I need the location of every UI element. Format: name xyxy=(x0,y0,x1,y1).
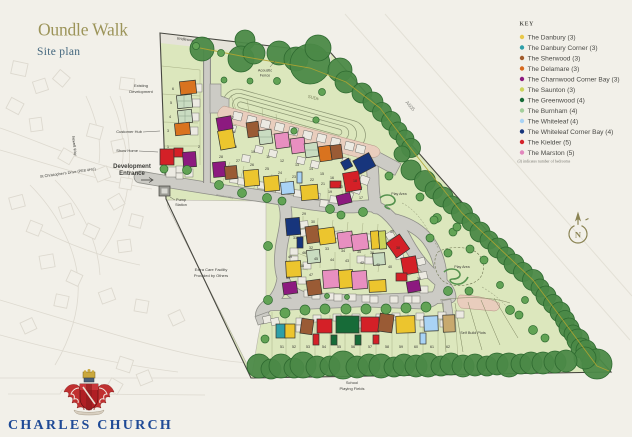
svg-text:KEY: KEY xyxy=(520,22,535,28)
svg-text:22: 22 xyxy=(310,178,314,182)
svg-text:9: 9 xyxy=(235,145,237,149)
svg-text:41: 41 xyxy=(376,263,380,267)
svg-text:28: 28 xyxy=(219,155,223,159)
svg-text:57: 57 xyxy=(368,345,372,349)
svg-text:15: 15 xyxy=(320,172,324,176)
svg-text:Show Home: Show Home xyxy=(116,148,139,153)
svg-text:12: 12 xyxy=(280,159,284,163)
svg-text:Play Area: Play Area xyxy=(391,192,406,196)
svg-text:Existing: Existing xyxy=(134,83,148,88)
svg-text:48: 48 xyxy=(300,264,304,268)
svg-text:33: 33 xyxy=(325,247,329,251)
svg-text:Entrance: Entrance xyxy=(119,171,145,177)
svg-text:49: 49 xyxy=(288,255,292,259)
svg-text:51: 51 xyxy=(280,345,284,349)
svg-text:4: 4 xyxy=(169,115,171,119)
svg-text:30: 30 xyxy=(311,220,315,224)
svg-text:46: 46 xyxy=(302,251,306,255)
svg-text:23: 23 xyxy=(292,175,296,179)
svg-text:54: 54 xyxy=(322,345,326,349)
svg-text:13: 13 xyxy=(295,163,299,167)
svg-text:56: 56 xyxy=(351,345,355,349)
svg-text:The Sherwood (3): The Sherwood (3) xyxy=(528,55,581,62)
svg-text:34: 34 xyxy=(341,249,345,253)
svg-text:Site plan: Site plan xyxy=(37,46,80,58)
svg-text:Fence: Fence xyxy=(260,74,271,78)
svg-text:The Burnham (4): The Burnham (4) xyxy=(528,108,578,115)
svg-text:CHARLES CHURCH: CHARLES CHURCH xyxy=(8,418,175,433)
svg-text:8: 8 xyxy=(233,130,235,134)
svg-text:7: 7 xyxy=(232,116,234,120)
svg-text:The Marston (5): The Marston (5) xyxy=(528,150,575,157)
svg-text:29: 29 xyxy=(302,212,306,216)
svg-text:42: 42 xyxy=(360,261,364,265)
svg-text:The Charnwood Corner Bay (3): The Charnwood Corner Bay (3) xyxy=(528,76,620,83)
svg-text:The Whiteleaf (4): The Whiteleaf (4) xyxy=(528,118,579,125)
svg-text:21: 21 xyxy=(321,182,325,186)
svg-text:The Whiteleaf Corner Bay (4): The Whiteleaf Corner Bay (4) xyxy=(528,129,614,136)
svg-text:43: 43 xyxy=(345,259,349,263)
svg-text:N: N xyxy=(575,230,582,240)
svg-text:36: 36 xyxy=(370,251,374,255)
svg-text:58: 58 xyxy=(385,345,389,349)
svg-text:The Danbury (3): The Danbury (3) xyxy=(528,34,576,41)
svg-text:20: 20 xyxy=(339,185,343,189)
svg-text:31: 31 xyxy=(293,236,297,240)
svg-text:17: 17 xyxy=(359,196,363,200)
svg-text:14: 14 xyxy=(309,167,313,171)
svg-text:50: 50 xyxy=(286,276,290,280)
svg-text:24: 24 xyxy=(278,171,282,175)
svg-text:Extra Care Facility: Extra Care Facility xyxy=(195,267,228,272)
svg-text:Pump: Pump xyxy=(176,198,186,202)
svg-text:6: 6 xyxy=(172,87,174,91)
svg-text:38: 38 xyxy=(396,246,400,250)
svg-text:5: 5 xyxy=(170,101,172,105)
svg-text:19: 19 xyxy=(328,190,332,194)
svg-text:10: 10 xyxy=(251,150,255,154)
svg-text:37: 37 xyxy=(390,230,394,234)
svg-text:26: 26 xyxy=(250,163,254,167)
svg-text:Acoustic: Acoustic xyxy=(258,69,272,73)
svg-text:11: 11 xyxy=(266,155,270,159)
svg-text:(3) indicates number of bedroo: (3) indicates number of bedrooms xyxy=(518,160,571,164)
svg-text:Playing Fields: Playing Fields xyxy=(340,386,365,391)
svg-text:The Greenwood (4): The Greenwood (4) xyxy=(528,97,585,104)
svg-text:32: 32 xyxy=(309,246,313,250)
svg-text:40: 40 xyxy=(388,265,392,269)
svg-text:Development: Development xyxy=(129,89,153,94)
svg-text:The Danbury Corner (3): The Danbury Corner (3) xyxy=(528,45,598,52)
svg-text:The Kielder (5): The Kielder (5) xyxy=(528,139,572,146)
svg-text:44: 44 xyxy=(330,258,334,262)
svg-text:27: 27 xyxy=(236,159,240,163)
svg-text:The Saunton (3): The Saunton (3) xyxy=(528,87,576,94)
svg-text:Customer Hub: Customer Hub xyxy=(116,129,143,134)
svg-text:39: 39 xyxy=(417,277,421,281)
svg-text:Self Build Plots: Self Build Plots xyxy=(460,331,486,335)
svg-text:2: 2 xyxy=(198,145,200,149)
svg-text:55: 55 xyxy=(337,345,341,349)
svg-text:18: 18 xyxy=(353,179,357,183)
svg-text:60: 60 xyxy=(414,345,418,349)
svg-text:59: 59 xyxy=(399,345,403,349)
svg-text:3: 3 xyxy=(167,129,169,133)
svg-text:25: 25 xyxy=(265,167,269,171)
svg-text:47: 47 xyxy=(309,273,313,277)
svg-text:School: School xyxy=(346,380,358,385)
svg-text:Play Area: Play Area xyxy=(454,265,469,269)
svg-text:The Delamare (3): The Delamare (3) xyxy=(528,66,580,73)
svg-text:35: 35 xyxy=(357,250,361,254)
svg-text:62: 62 xyxy=(446,345,450,349)
svg-text:Development: Development xyxy=(113,164,151,170)
svg-text:Provided by Others: Provided by Others xyxy=(194,273,228,278)
svg-text:1: 1 xyxy=(167,145,169,149)
svg-text:16: 16 xyxy=(330,176,334,180)
svg-text:45: 45 xyxy=(314,257,318,261)
svg-text:Oundle Walk: Oundle Walk xyxy=(38,20,128,40)
svg-text:Station: Station xyxy=(175,203,187,207)
svg-text:61: 61 xyxy=(430,345,434,349)
svg-text:52: 52 xyxy=(292,345,296,349)
svg-text:53: 53 xyxy=(306,345,310,349)
